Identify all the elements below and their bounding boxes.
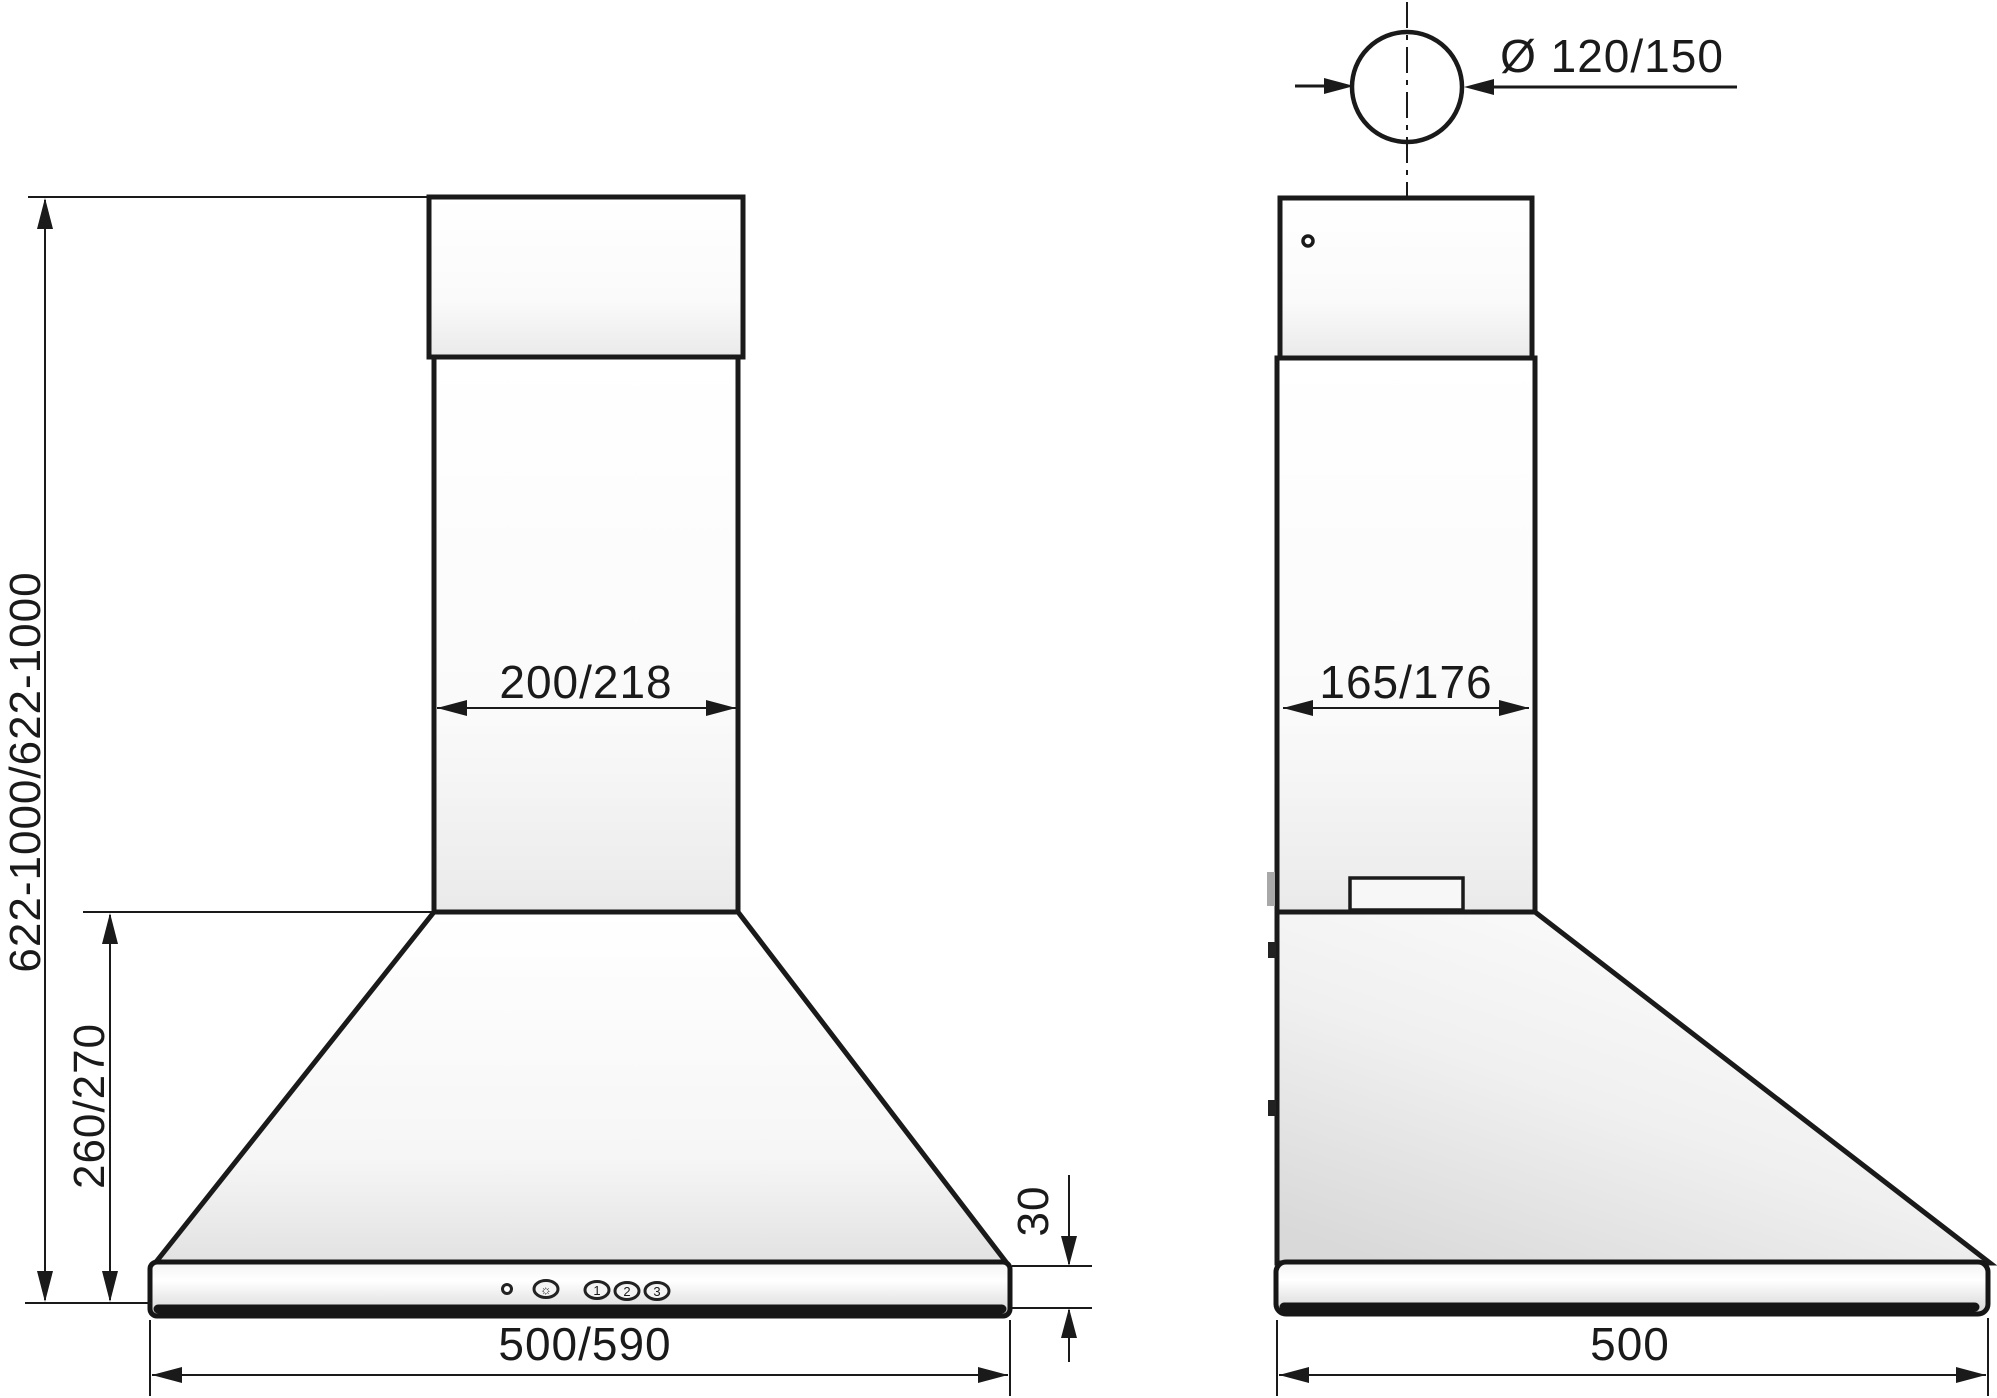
screw-tick	[1268, 942, 1276, 958]
arrow-right-icon	[1956, 1367, 1986, 1383]
arrow-up-icon	[1061, 1308, 1077, 1338]
drawing-svg: ☼ 1 2 3	[0, 0, 1997, 1398]
mounting-hole	[1303, 236, 1313, 246]
front-chimney-upper-section	[429, 197, 743, 357]
speed-button-2-label: 2	[623, 1284, 630, 1299]
front-chimney-lower-section	[434, 357, 738, 912]
front-view: ☼ 1 2 3	[150, 197, 1010, 1316]
side-chimney-upper-section	[1280, 198, 1532, 358]
dim-label-chimney-width: 200/218	[499, 656, 672, 708]
arrow-right-icon	[978, 1367, 1008, 1383]
power-indicator-light	[503, 1285, 512, 1294]
arrow-left-icon	[1279, 1367, 1309, 1383]
arrow-right-icon	[1324, 78, 1354, 94]
arrow-up-icon	[37, 198, 53, 229]
front-canopy	[156, 912, 1006, 1262]
arrow-down-icon	[102, 1271, 118, 1302]
dim-label-base-height: 30	[1009, 1186, 1058, 1237]
dim-label-canopy-height: 260/270	[65, 1023, 114, 1189]
speed-button-3-label: 3	[653, 1284, 660, 1299]
arrow-down-icon	[37, 1271, 53, 1302]
dim-label-body-depth: 500	[1590, 1318, 1670, 1370]
dim-label-chimney-depth: 165/176	[1319, 656, 1492, 708]
speed-button-1-label: 1	[593, 1283, 600, 1298]
arrow-left-icon	[1464, 79, 1494, 95]
arrow-left-icon	[152, 1367, 182, 1383]
side-canopy	[1277, 912, 1990, 1263]
screw-tick	[1268, 1100, 1276, 1116]
dim-label-overall-height: 622-1000/622-1000	[1, 571, 50, 972]
bracket-tick	[1267, 872, 1275, 906]
dim-label-body-width: 500/590	[498, 1318, 671, 1370]
arrow-up-icon	[102, 913, 118, 944]
dim-label-duct-diameter: Ø 120/150	[1500, 30, 1724, 82]
arrow-down-icon	[1061, 1236, 1077, 1266]
dimension-drawing: ☼ 1 2 3	[0, 0, 1997, 1398]
side-chimney-lower-section	[1277, 358, 1535, 912]
damper-detail	[1350, 878, 1463, 910]
light-button-icon: ☼	[540, 1282, 552, 1297]
